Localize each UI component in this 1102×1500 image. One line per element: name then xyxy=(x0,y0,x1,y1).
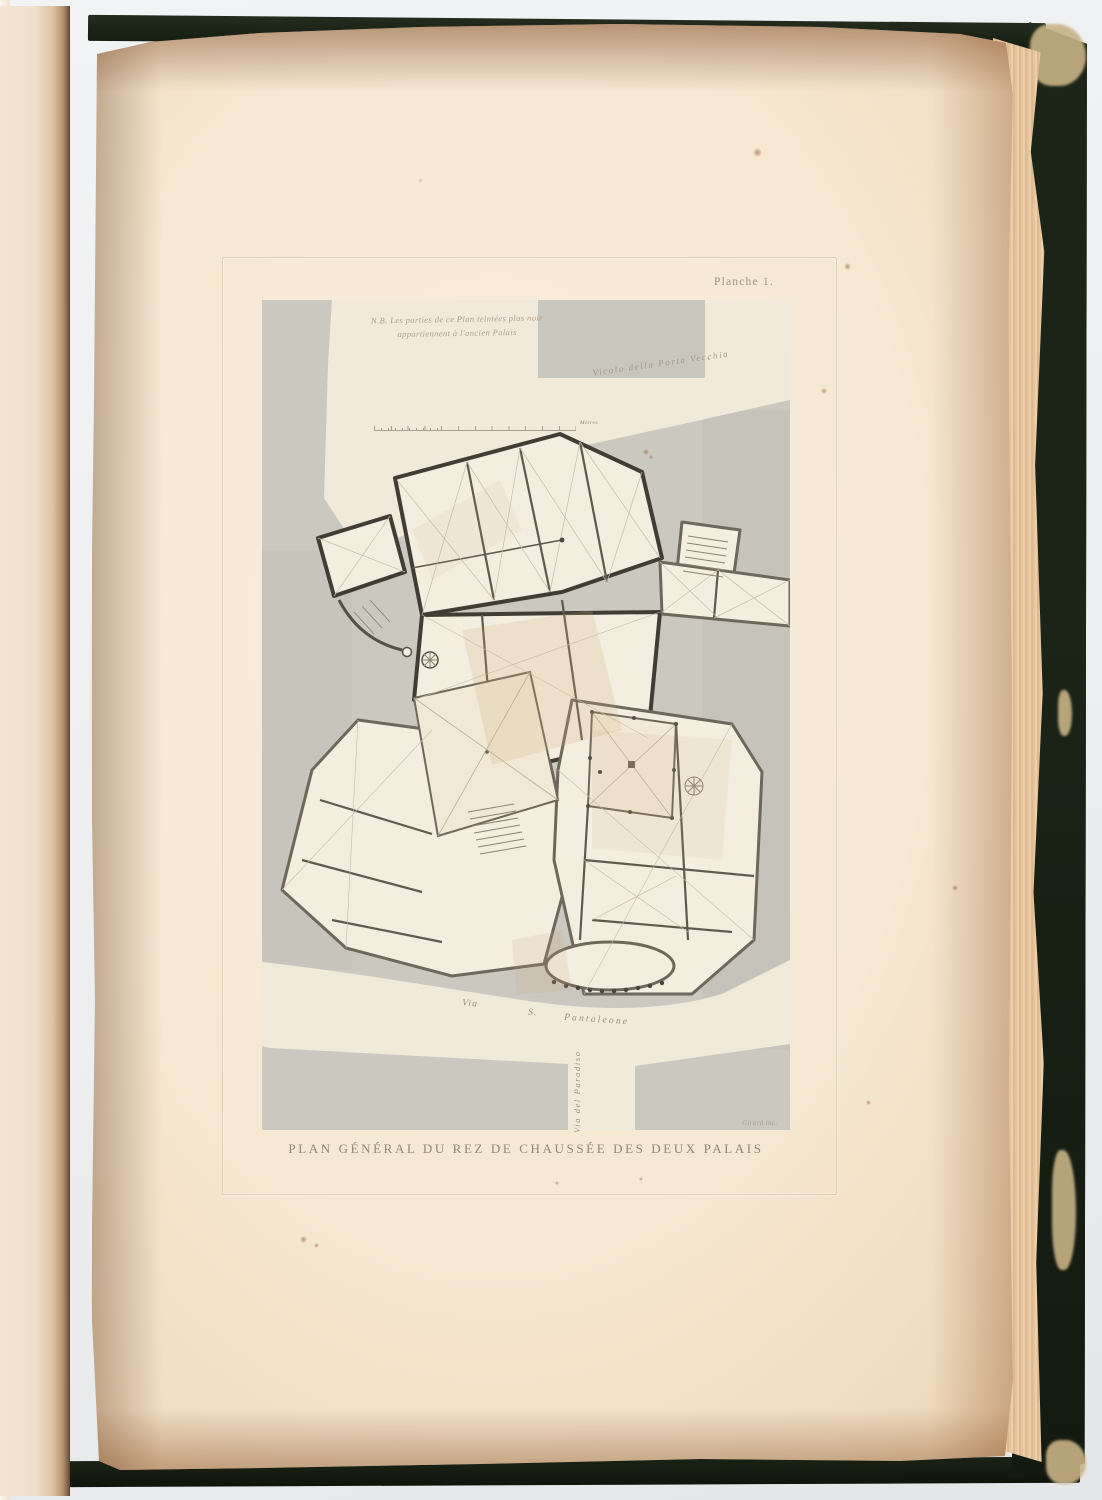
cover-wear-patch xyxy=(1058,690,1072,736)
plate-note: N.B. Les parties de ce Plan teintées plu… xyxy=(348,311,566,342)
street-label-via: Via xyxy=(462,998,479,1009)
foxing-spot xyxy=(866,1100,871,1105)
plate-page: Planche 1. xyxy=(0,0,1102,1500)
scale-unit-label: Mètres xyxy=(580,420,598,426)
book-photograph: Planche 1. xyxy=(0,0,1102,1500)
foxing-spot xyxy=(753,148,762,157)
plate-number: Planche 1. xyxy=(714,276,824,288)
cover-wear-patch xyxy=(1052,1150,1076,1270)
foxing-spot xyxy=(314,1243,319,1248)
street-label-paradiso: Via del Paradiso xyxy=(572,1041,582,1133)
foxing-spot xyxy=(844,263,851,270)
gutter-shadow xyxy=(92,30,162,1470)
foxing-spot xyxy=(643,449,649,455)
foxing-spot xyxy=(639,1177,643,1181)
cover-wear-corner xyxy=(1046,1440,1086,1484)
street-label-s: S. xyxy=(528,1008,538,1019)
foxing-spot xyxy=(821,388,827,394)
facing-page-sliver xyxy=(0,6,70,1496)
scale-bar xyxy=(374,424,576,431)
toned-bottom-edge xyxy=(90,1408,1015,1470)
spiral-stair-small xyxy=(422,652,438,668)
foxing-spot xyxy=(418,178,423,183)
foxing-spot xyxy=(649,455,653,459)
foxing-spot xyxy=(952,885,958,891)
foxing-spot xyxy=(555,1181,559,1185)
foxing-spot xyxy=(300,1236,307,1243)
engraver-signature: Girard inc. xyxy=(742,1119,778,1127)
scale-bar-subticks xyxy=(374,428,444,430)
toned-right-edge xyxy=(930,30,1014,1470)
plate-caption: PLAN GÉNÉRAL DU REZ DE CHAUSSÉE DES DEUX… xyxy=(262,1141,790,1157)
